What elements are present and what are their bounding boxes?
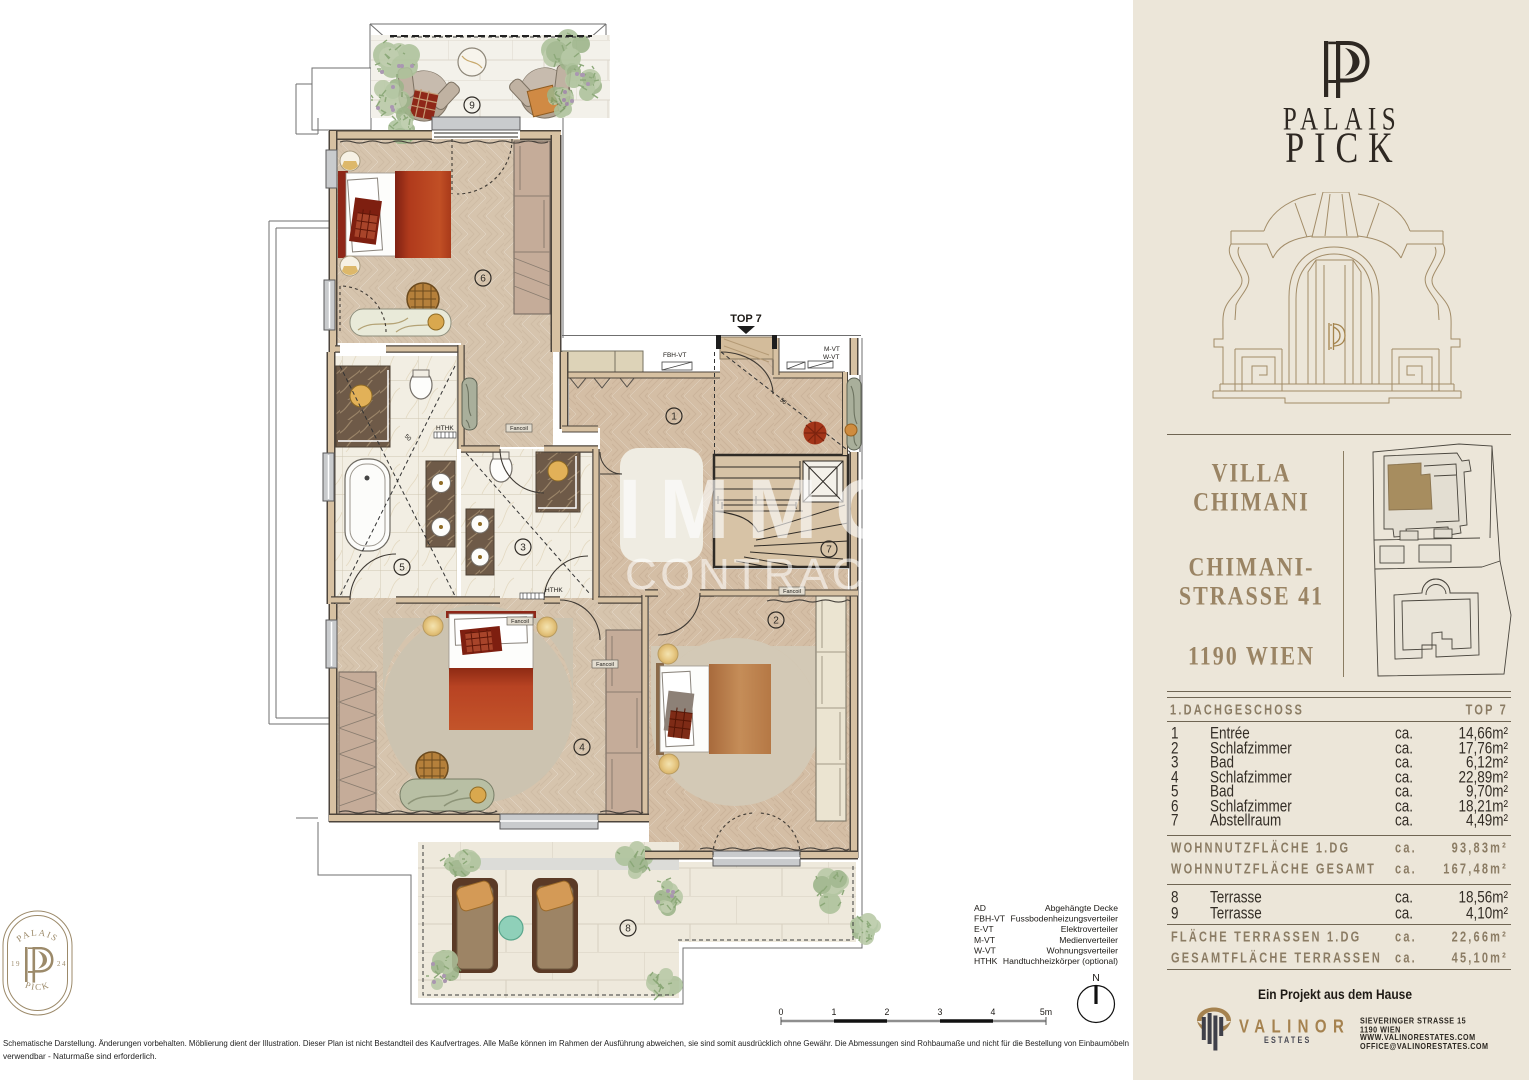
svg-text:4: 4 [991,1007,996,1017]
svg-text:TOP 7: TOP 7 [730,313,761,325]
svg-text:E-VT: E-VT [974,924,994,934]
svg-text:2: 2 [885,1007,890,1017]
svg-text:4: 4 [579,743,585,754]
svg-text:3: 3 [520,543,526,554]
svg-text:AD: AD [974,903,986,913]
svg-text:W-VT: W-VT [974,945,997,955]
svg-text:0: 0 [779,1007,784,1017]
svg-text:5: 5 [399,563,405,574]
svg-text:Fancoil: Fancoil [511,619,529,625]
svg-text:FBH-VT: FBH-VT [663,352,687,359]
svg-text:PICK: PICK [24,980,51,992]
svg-text:1: 1 [671,412,677,423]
svg-text:HTHK: HTHK [436,425,454,432]
svg-text:CONTRACT: CONTRACT [625,550,897,599]
svg-text:M-VT: M-VT [974,935,996,945]
svg-text:IMMO: IMMO [618,462,919,556]
svg-text:Fancoil: Fancoil [596,662,614,668]
svg-text:W-VT: W-VT [823,354,840,361]
svg-text:HTHK: HTHK [974,956,998,966]
svg-text:PALAIS: PALAIS [15,927,61,943]
svg-text:9: 9 [469,101,475,112]
svg-text:Fussbodenheizungsverteiler: Fussbodenheizungsverteiler [1011,914,1119,924]
svg-text:verwendbar - Naturmaße sind er: verwendbar - Naturmaße sind erforderlich… [3,1052,157,1061]
svg-text:Abgehängte Decke: Abgehängte Decke [1045,903,1118,913]
svg-text:HTHK: HTHK [545,587,563,594]
svg-text:Schematische Darstellung. Ände: Schematische Darstellung. Änderungen vor… [3,1038,1129,1048]
svg-text:N: N [1092,972,1100,984]
svg-text:8: 8 [625,924,631,935]
svg-text:5m: 5m [1040,1007,1052,1017]
svg-text:1: 1 [832,1007,837,1017]
svg-text:6: 6 [480,274,486,285]
svg-text:19: 19 [11,960,21,968]
svg-text:3: 3 [938,1007,943,1017]
svg-text:FBH-VT: FBH-VT [974,914,1006,924]
svg-text:Fancoil: Fancoil [510,426,528,432]
svg-text:Elektroverteiler: Elektroverteiler [1061,924,1118,934]
svg-text:M-VT: M-VT [824,346,840,353]
svg-text:2: 2 [773,616,779,627]
svg-text:Handtuchheizkörper (optional): Handtuchheizkörper (optional) [1003,956,1118,966]
svg-text:Medienverteiler: Medienverteiler [1059,935,1118,945]
svg-text:24: 24 [57,960,67,968]
svg-text:Wohnungsverteiler: Wohnungsverteiler [1047,945,1119,955]
